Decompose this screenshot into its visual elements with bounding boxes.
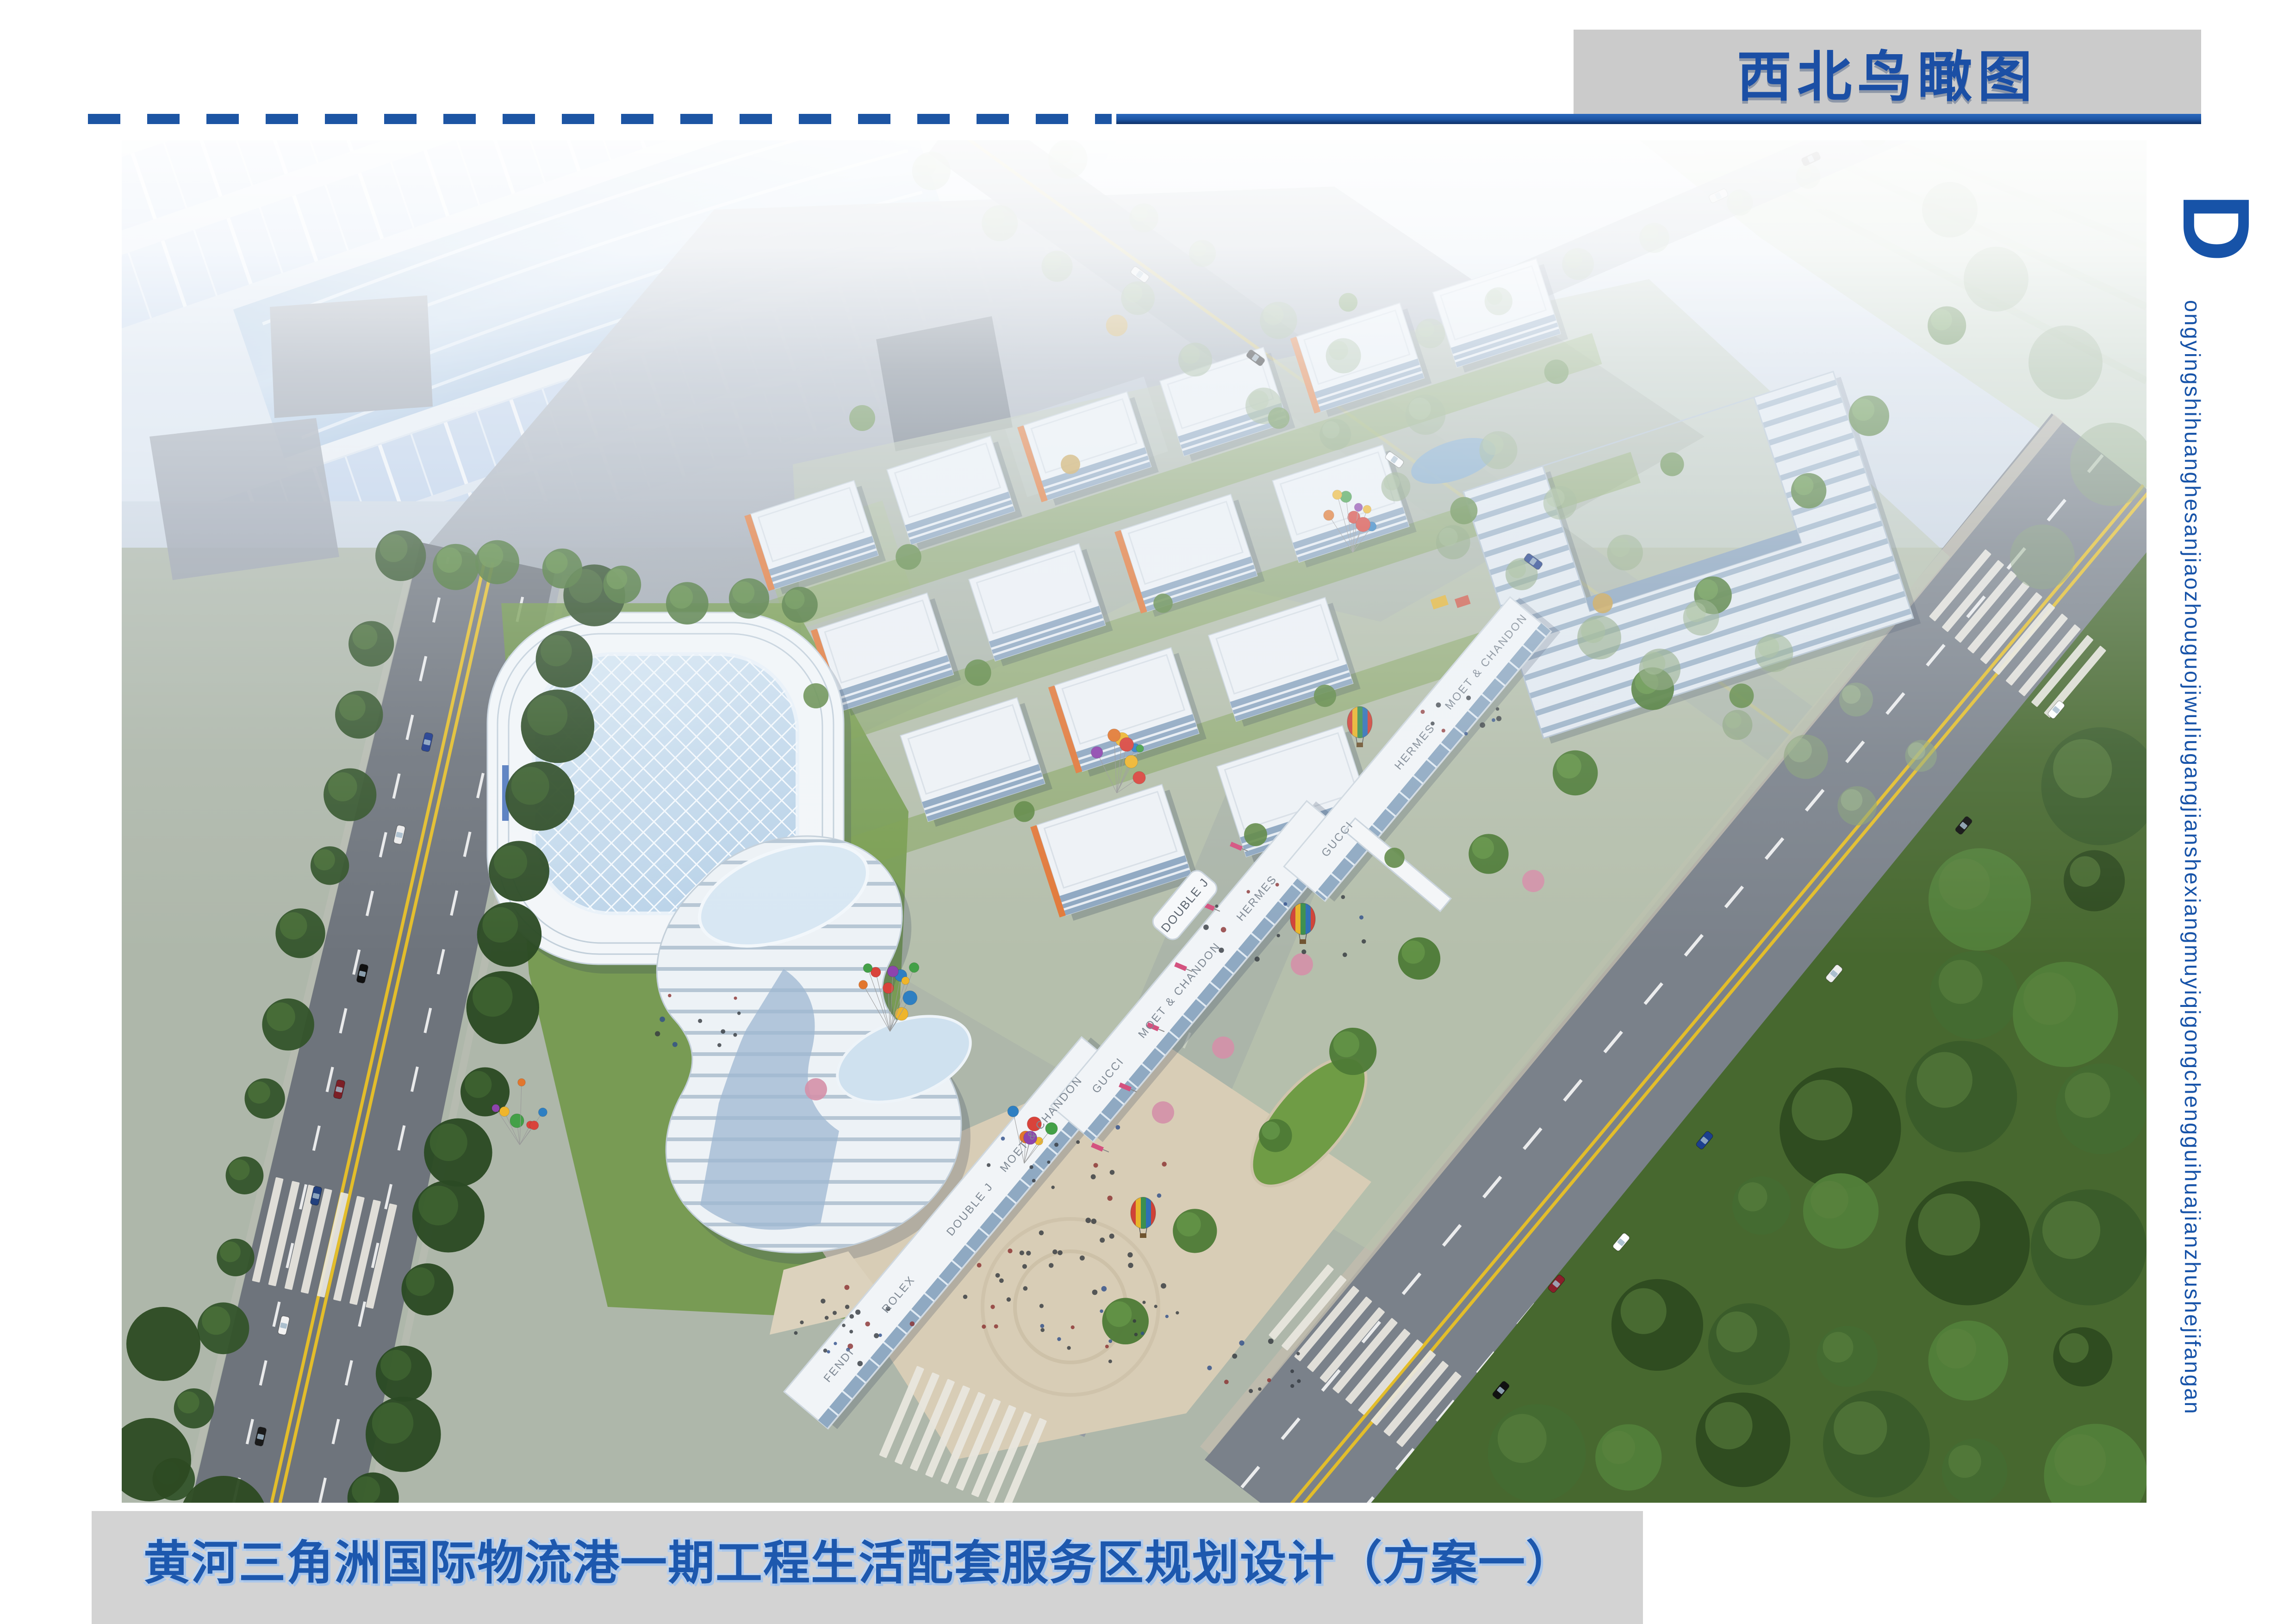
drawing-title-box: 西北鸟瞰图 [1574, 30, 2201, 114]
footer-bar: 黄河三角洲国际物流港一期工程生活配套服务区规划设计（方案一） [92, 1511, 1643, 1624]
project-title: 黄河三角洲国际物流港一期工程生活配套服务区规划设计（方案一） [143, 1525, 1574, 1593]
haze-overlay [122, 140, 2147, 1503]
drawing-title: 西北鸟瞰图 [1737, 32, 2038, 112]
top-solid-rule [1116, 114, 2201, 124]
side-caption-text: ongyingshihuanghesanjiaozhouguojiwuliuga… [2182, 300, 2203, 1415]
aerial-rendering: FENDIROLEXDOUBLE JMOET & CHANDONGUCCIMOE… [122, 140, 2147, 1503]
top-dashed-rule [88, 114, 1112, 124]
presentation-board: { "header": { "drawing_title": "西北鸟瞰图", … [0, 0, 2296, 1624]
side-caption-initial: D [2169, 194, 2264, 262]
